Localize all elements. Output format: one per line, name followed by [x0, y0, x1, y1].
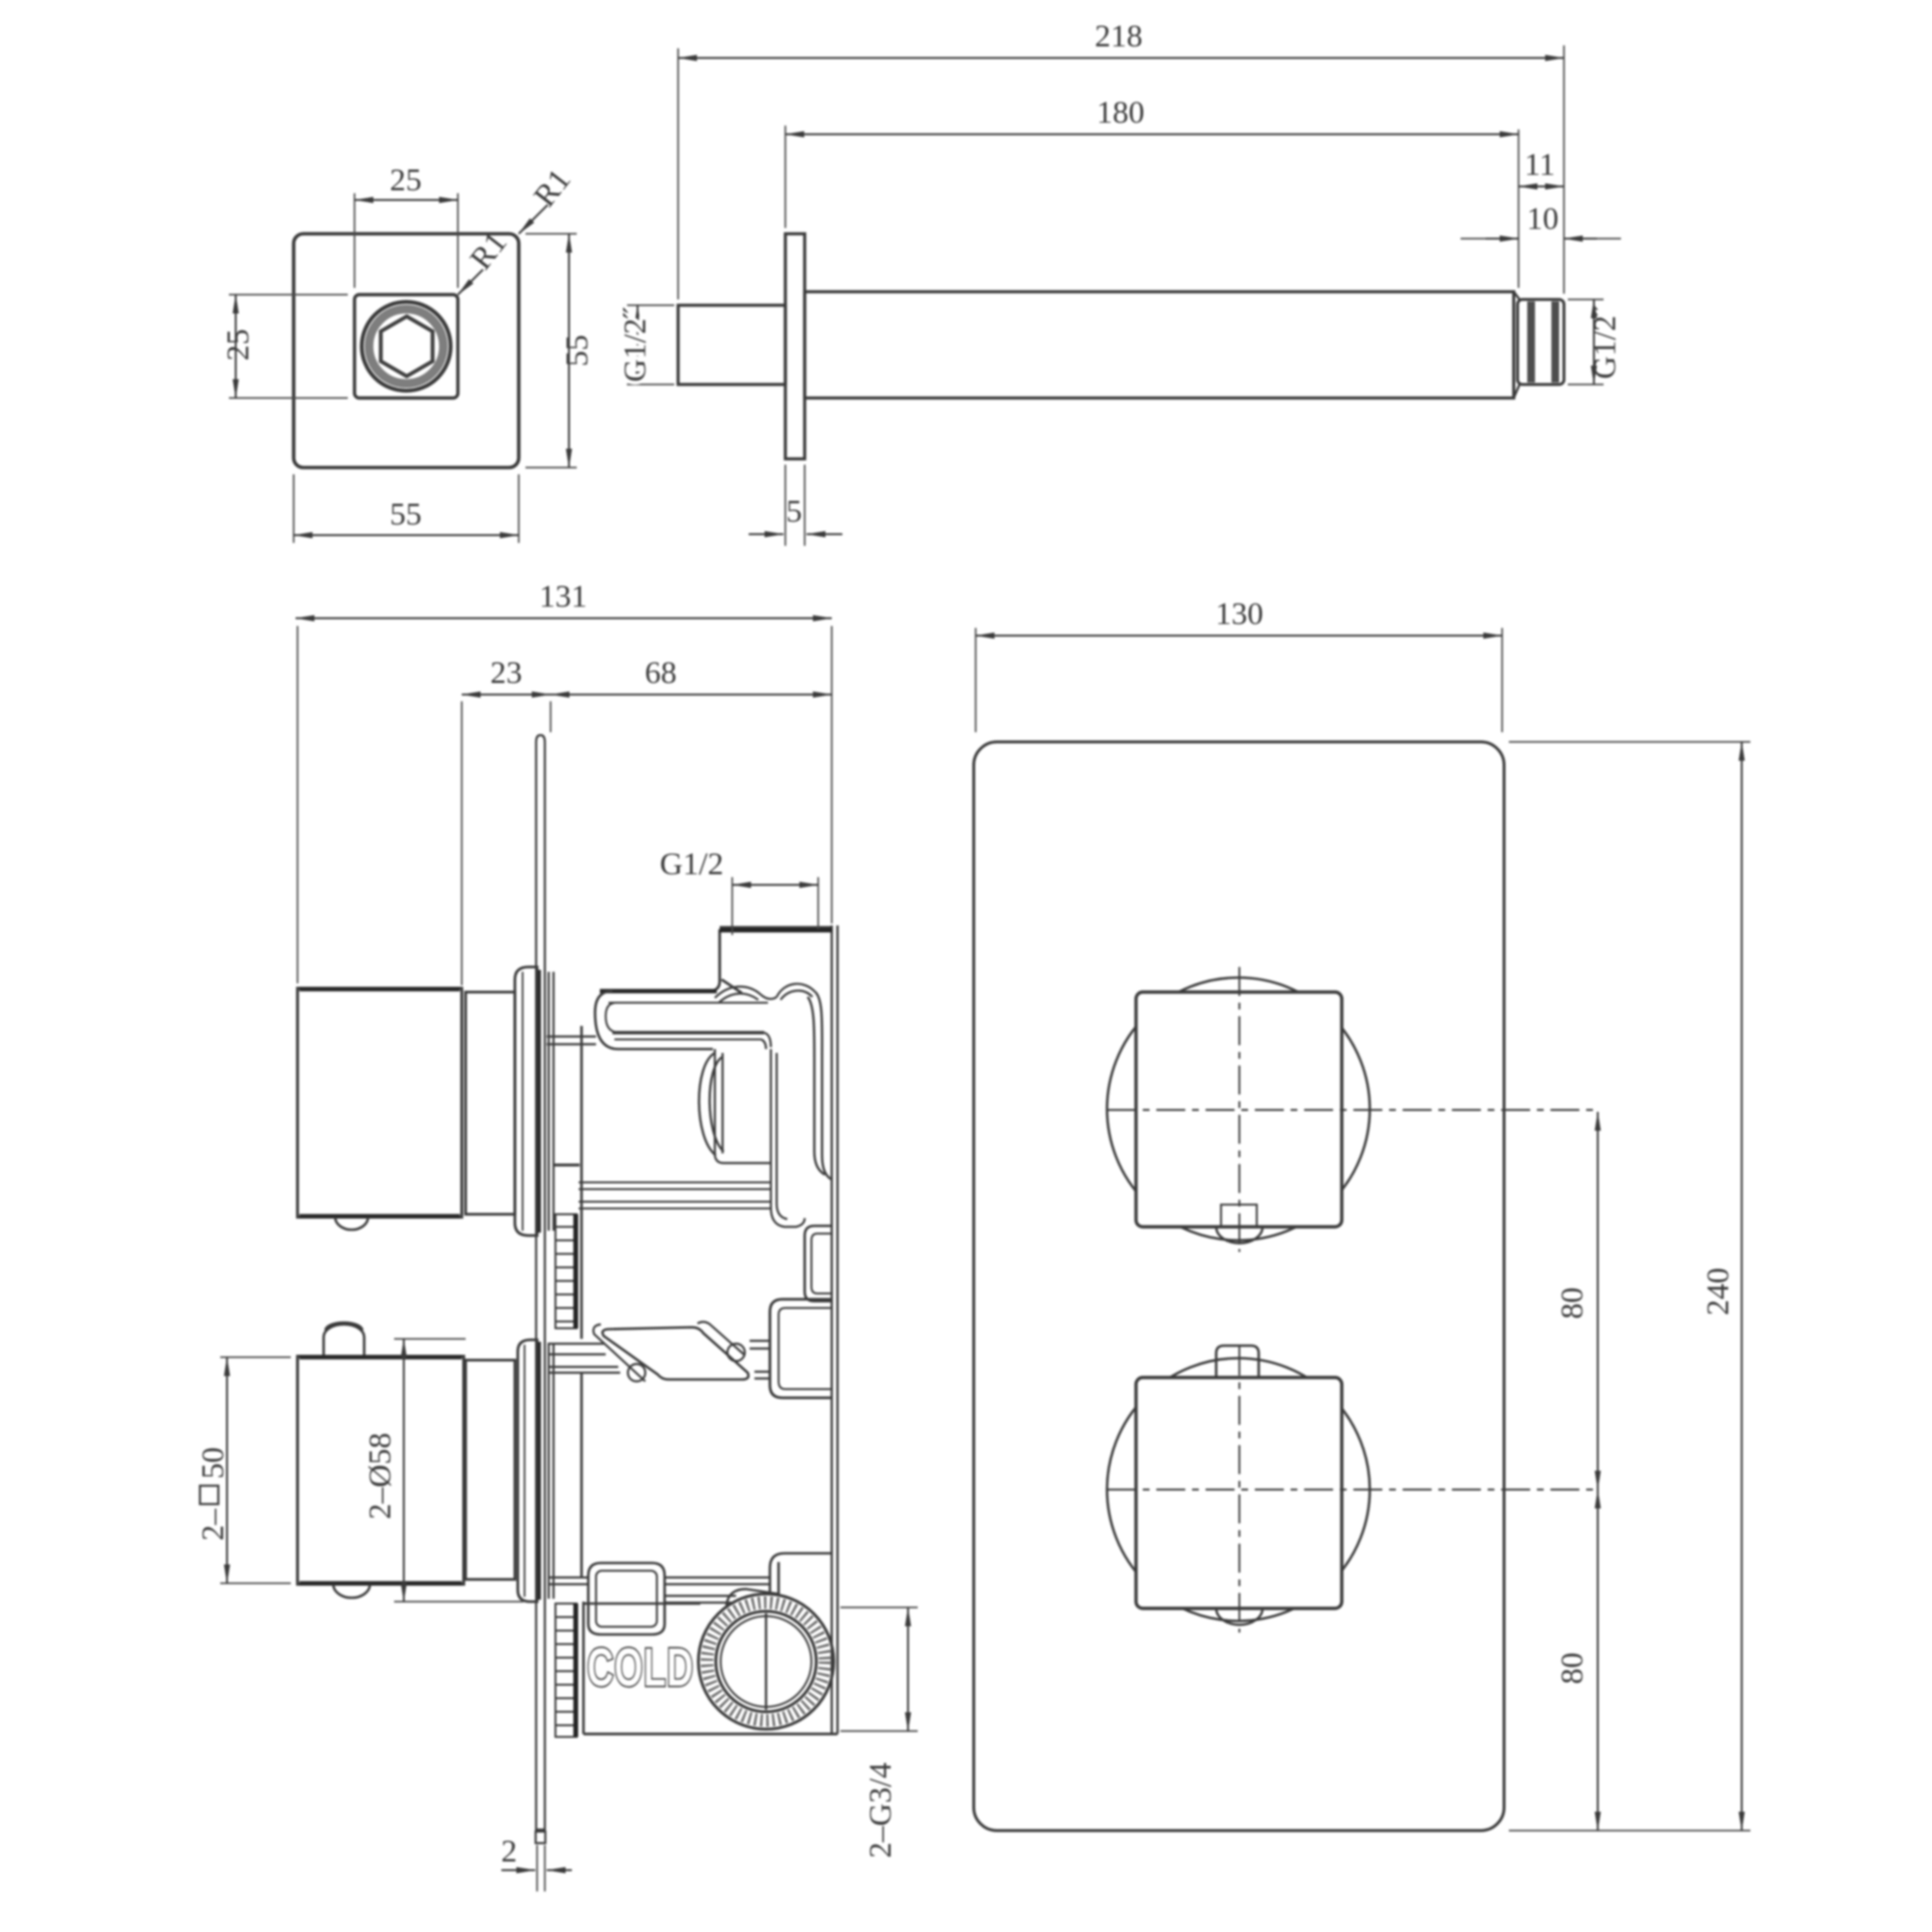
svg-text:G1/2: G1/2 [660, 847, 724, 882]
svg-text:2–: 2– [196, 1509, 231, 1542]
svg-text:50: 50 [196, 1447, 231, 1479]
svg-text:80: 80 [1555, 1653, 1590, 1685]
svg-text:240: 240 [1701, 1267, 1736, 1316]
svg-text:G1/2˝: G1/2˝ [1588, 304, 1623, 380]
svg-text:10: 10 [1527, 202, 1559, 237]
svg-text:25: 25 [390, 163, 422, 198]
svg-text:68: 68 [645, 656, 677, 691]
svg-text:2: 2 [501, 1834, 518, 1869]
svg-text:180: 180 [1096, 96, 1145, 130]
svg-text:23: 23 [491, 656, 523, 691]
svg-text:218: 218 [1094, 19, 1143, 54]
svg-text:80: 80 [1555, 1288, 1590, 1320]
svg-text:5: 5 [786, 495, 803, 529]
svg-text:R1: R1 [527, 163, 578, 214]
svg-text:55: 55 [390, 497, 422, 532]
svg-text:55: 55 [560, 335, 595, 367]
svg-text:130: 130 [1215, 597, 1264, 632]
svg-text:25: 25 [221, 329, 256, 361]
svg-text:COLD: COLD [587, 1638, 695, 1698]
svg-text:131: 131 [539, 580, 587, 614]
svg-text:G1/2˝: G1/2˝ [618, 307, 653, 383]
svg-text:2–Ø58: 2–Ø58 [363, 1433, 398, 1520]
svg-text:2–G3/4: 2–G3/4 [864, 1763, 898, 1859]
svg-text:11: 11 [1524, 148, 1555, 183]
